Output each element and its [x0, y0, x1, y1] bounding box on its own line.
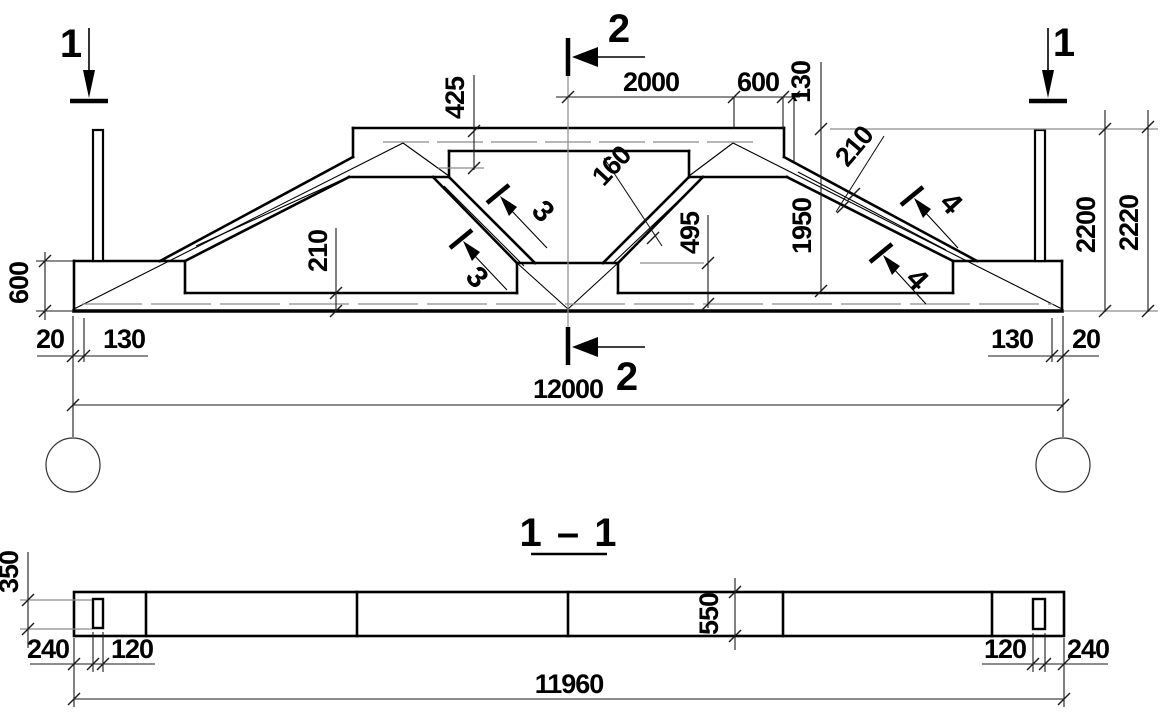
- section-mark-2-top: 2: [568, 7, 645, 76]
- section-view-title: 1 – 1: [520, 511, 619, 555]
- dim-20-right: 20: [1072, 324, 1100, 354]
- dim-425: 425: [440, 76, 470, 119]
- dim-210-slope: 210: [829, 120, 879, 172]
- dim-240-right: 240: [1067, 634, 1109, 664]
- dim-130-left: 130: [103, 324, 145, 354]
- dim-1950: 1950: [787, 198, 817, 254]
- dim-600-left: 600: [4, 262, 34, 304]
- rebar-3-label-upper: 3: [525, 194, 561, 229]
- section-mark-1-left: 1: [60, 22, 108, 101]
- rebar-3-label-lower: 3: [459, 260, 495, 295]
- dim-2220: 2220: [1114, 195, 1144, 251]
- dim-120-left: 120: [111, 634, 153, 664]
- dim-350: 350: [0, 551, 24, 593]
- dim-120-right: 120: [984, 634, 1026, 664]
- dim-240-left: 240: [27, 634, 69, 664]
- right-support-post: [1035, 130, 1045, 261]
- drawing-svg: 1 1 2 2 3 3 4 4: [0, 0, 1161, 718]
- dim-2200: 2200: [1071, 197, 1101, 253]
- dim-2000: 2000: [623, 67, 679, 97]
- dim-130-right: 130: [991, 324, 1033, 354]
- dim-550: 550: [694, 593, 724, 635]
- elevation-dimension-labels: 2000 600 130 425 160 495 1950 2200 2220 …: [4, 61, 1144, 404]
- dim-600-top: 600: [737, 67, 779, 97]
- section-1-label-left: 1: [60, 22, 82, 66]
- dim-12000: 12000: [533, 374, 603, 404]
- right-axis-bubble: [1036, 438, 1090, 492]
- rebar-mark-4-lower: 4: [870, 244, 935, 304]
- dim-495: 495: [675, 211, 705, 254]
- left-post-socket: [93, 599, 103, 628]
- dim-20-left: 20: [36, 324, 64, 354]
- rebar-4-label-upper: 4: [933, 186, 969, 221]
- section-view-1-1: 1 – 1: [0, 511, 1109, 707]
- rebar-mark-3-upper: 3: [487, 185, 561, 248]
- dim-160: 160: [586, 140, 637, 191]
- section-2-label-bottom: 2: [616, 355, 638, 399]
- dim-130-top: 130: [786, 61, 816, 103]
- dim-11960: 11960: [535, 669, 604, 699]
- right-post-socket: [1033, 599, 1045, 629]
- section-1-label-right: 1: [1053, 21, 1075, 65]
- dim-210-chord: 210: [303, 230, 333, 272]
- left-axis-bubble: [46, 438, 100, 492]
- section-mark-1-right: 1: [1029, 21, 1075, 101]
- truss-drawing-canvas: 1 1 2 2 3 3 4 4: [0, 0, 1161, 718]
- axis-lines: [82, 76, 1158, 327]
- left-support-post: [93, 130, 103, 261]
- section-2-label-top: 2: [608, 7, 630, 51]
